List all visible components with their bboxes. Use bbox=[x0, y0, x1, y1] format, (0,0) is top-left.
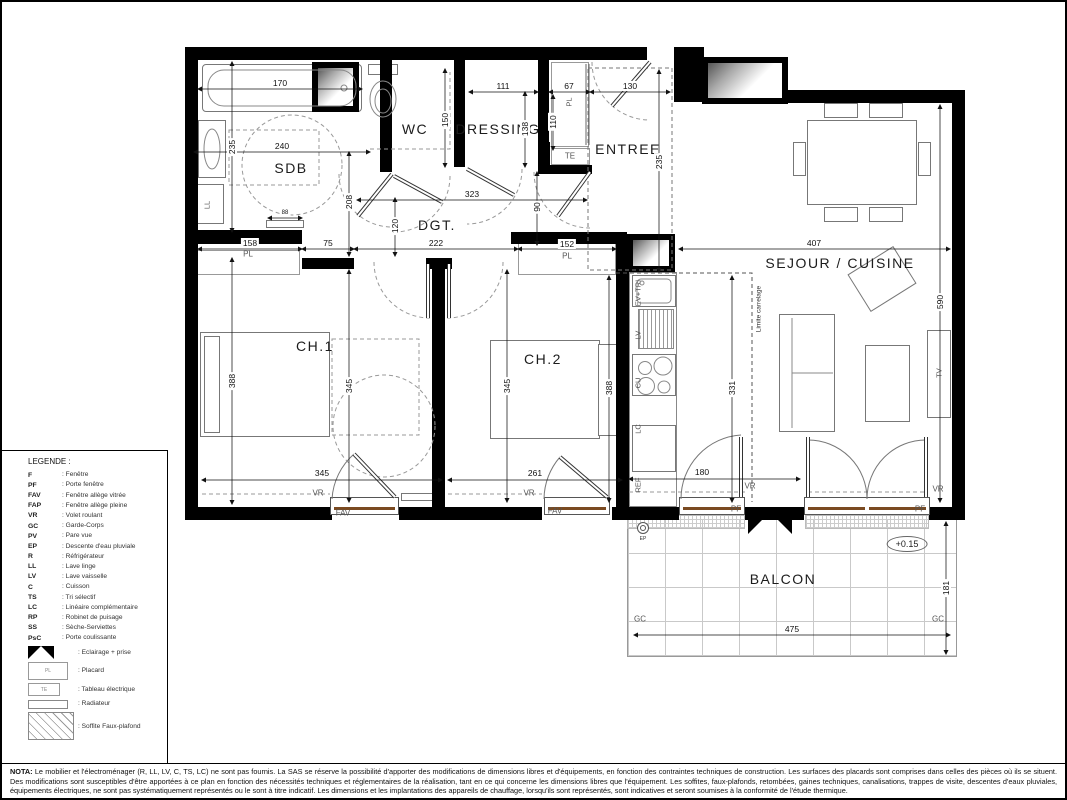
shutter-tag-vr-ch1: VR bbox=[312, 489, 323, 498]
dimension-label: 208 bbox=[344, 193, 354, 211]
legend-abbr: PV bbox=[28, 533, 62, 540]
legend-abbr: VR bbox=[28, 512, 62, 519]
chair bbox=[918, 142, 931, 176]
pillow-ch1 bbox=[204, 336, 220, 433]
shutter-tag-vr-kitchen: VR bbox=[744, 482, 755, 491]
room-label-entree: ENTREE bbox=[595, 141, 661, 157]
dimension-label: 120 bbox=[390, 217, 400, 235]
fridge-label: REF bbox=[634, 478, 643, 493]
window-tag-fav-ch1: FAV bbox=[336, 509, 351, 518]
sofa bbox=[779, 314, 835, 432]
level-label: +0.15 bbox=[887, 536, 928, 552]
wall bbox=[302, 258, 354, 269]
soffit-symbol-icon bbox=[28, 712, 74, 740]
dimension-label: 138 bbox=[520, 120, 530, 138]
electrical-panel-symbol-icon: TE bbox=[28, 683, 60, 696]
floorplan-sheet: SDBWCDRESSINGENTREEDGT.CH.1CH.2SEJOUR / … bbox=[0, 0, 1067, 800]
chair bbox=[793, 142, 806, 176]
legend-row: TE: Tableau électrique bbox=[28, 683, 163, 696]
legend-row: : Radiateur bbox=[28, 699, 163, 709]
placard-symbol-icon: PL bbox=[28, 662, 68, 680]
legend-row: EP: Descente d'eau pluviale bbox=[28, 541, 163, 551]
legend-desc: : Fenêtre allège vitrée bbox=[62, 492, 126, 500]
door-sill bbox=[808, 507, 865, 510]
washbasin bbox=[198, 120, 226, 178]
legend-desc: : Fenêtre allège pleine bbox=[62, 502, 127, 510]
door-window-tag-pf-kitchen: PF bbox=[731, 505, 741, 514]
legend-abbr: C bbox=[28, 584, 62, 591]
wall bbox=[185, 47, 198, 520]
legend-desc: : Descente d'eau pluviale bbox=[62, 543, 135, 551]
dimension-label: 407 bbox=[805, 238, 823, 248]
legend-row: RP: Robinet de puisage bbox=[28, 613, 163, 623]
dimension-label: 590 bbox=[935, 293, 945, 311]
room-label-sejour-cuisine: SEJOUR / CUISINE bbox=[765, 255, 914, 271]
dimension-label: 88 bbox=[280, 210, 291, 216]
wall bbox=[929, 507, 965, 520]
legend-row: F: Fenêtre bbox=[28, 470, 163, 480]
railing-tag-gc-right: GC bbox=[932, 615, 944, 624]
nota-text: Le mobilier et l'électroménager (R, LL, … bbox=[10, 767, 1057, 795]
dimension-label: 90 bbox=[532, 200, 542, 213]
legend-abbr: PF bbox=[28, 482, 62, 489]
legend-abbr: LC bbox=[28, 604, 62, 611]
railing-tag-gc-left: GC bbox=[634, 615, 646, 624]
dimension-label: 170 bbox=[271, 78, 289, 88]
legend-desc: : Robinet de puisage bbox=[62, 614, 123, 622]
legend-desc: : Pare vue bbox=[62, 532, 92, 540]
room-label-wc: WC bbox=[402, 121, 428, 137]
hob-label: CU bbox=[634, 378, 643, 389]
door-pf-sejour bbox=[804, 497, 930, 515]
legend-panel: LEGENDE : F: FenêtrePF: Porte fenêtreFAV… bbox=[2, 450, 168, 763]
legend-abbr: TS bbox=[28, 594, 62, 601]
legend-desc: : Soffite Faux-plafond bbox=[78, 723, 141, 731]
door-window-tag-pf-sejour: PF bbox=[915, 505, 925, 514]
kitchen-sink-label: EV+TRI bbox=[634, 280, 643, 306]
legend-abbr: RP bbox=[28, 614, 62, 621]
wall bbox=[674, 47, 704, 102]
downspout-label: EP bbox=[640, 536, 647, 542]
chair bbox=[869, 207, 903, 222]
wall bbox=[612, 507, 679, 520]
legend-row: C: Cuisson bbox=[28, 582, 163, 592]
radiator-symbol-icon bbox=[28, 700, 68, 709]
dimension-label: 331 bbox=[727, 379, 737, 397]
dimension-label: 222 bbox=[427, 238, 445, 248]
legend-abbr: LV bbox=[28, 573, 62, 580]
dimension-label: 388 bbox=[227, 372, 237, 390]
room-label-ch2: CH.2 bbox=[524, 351, 562, 367]
legend-desc: : Sèche-Serviettes bbox=[62, 624, 116, 632]
legend-row: LL: Lave linge bbox=[28, 562, 163, 572]
legend-desc: : Lave linge bbox=[62, 563, 96, 571]
electrical-panel-label: TE bbox=[565, 152, 575, 161]
legend-abbr: R bbox=[28, 553, 62, 560]
legend-desc: : Cuisson bbox=[62, 583, 90, 591]
dishwasher bbox=[638, 309, 674, 349]
legend-row: PsC: Porte coulissante bbox=[28, 633, 163, 643]
placard-entree-label: PL bbox=[565, 97, 574, 106]
legend-desc: : Radiateur bbox=[78, 700, 110, 708]
wall bbox=[432, 258, 445, 507]
wall bbox=[616, 244, 629, 507]
legend-desc: : Volet roulant bbox=[62, 512, 102, 520]
washing-machine-label: LL bbox=[203, 201, 212, 209]
legend-row: PF: Porte fenêtre bbox=[28, 480, 163, 490]
legend-desc: : Garde-Corps bbox=[62, 522, 104, 530]
legend-desc: : Eclairage + prise bbox=[78, 649, 131, 657]
dimension-label: 152 bbox=[558, 239, 576, 249]
wall bbox=[185, 507, 332, 520]
kitchen-lc-label: LC bbox=[634, 424, 643, 434]
tile-limit-label: Limite carrelage bbox=[756, 286, 763, 332]
wall bbox=[788, 90, 965, 103]
dimension-label: 111 bbox=[495, 81, 512, 91]
legend-row: SS: Sèche-Serviettes bbox=[28, 623, 163, 633]
dimension-label: 130 bbox=[621, 81, 639, 91]
legend-row: LC: Linéaire complémentaire bbox=[28, 602, 163, 612]
wall bbox=[399, 507, 542, 520]
dining-table bbox=[807, 120, 917, 205]
dimension-label: 388 bbox=[604, 379, 614, 397]
legend-abbr: FAP bbox=[28, 502, 62, 509]
room-label-balcon: BALCON bbox=[750, 571, 817, 587]
wall bbox=[454, 60, 465, 167]
dimension-label: 323 bbox=[463, 189, 481, 199]
legend-desc: : Tri sélectif bbox=[62, 594, 95, 602]
threshold bbox=[805, 515, 929, 529]
room-label-sdb: SDB bbox=[274, 160, 307, 176]
dimension-label: 345 bbox=[313, 468, 331, 478]
dimension-label: 75 bbox=[321, 238, 334, 248]
legend-row: : Eclairage + prise bbox=[28, 646, 163, 659]
window-tag-fav-ch2: FAV bbox=[548, 507, 563, 516]
lighting-socket-symbol-icon bbox=[28, 646, 54, 659]
nota-strip: NOTA: Le mobilier et l'électroménager (R… bbox=[2, 763, 1065, 798]
duct-shaft bbox=[702, 57, 788, 104]
dimension-label: 180 bbox=[693, 467, 711, 477]
legend-abbr: EP bbox=[28, 543, 62, 550]
dimension-label: 150 bbox=[440, 111, 450, 129]
dimension-label: 158 bbox=[241, 238, 259, 248]
chair bbox=[824, 207, 858, 222]
dimension-label: 240 bbox=[273, 141, 291, 151]
dimension-label: 261 bbox=[526, 468, 544, 478]
legend-abbr: SS bbox=[28, 624, 62, 631]
dishwasher-label: LV bbox=[634, 331, 643, 340]
legend-row: GC: Garde-Corps bbox=[28, 521, 163, 531]
legend-desc: : Tableau électrique bbox=[78, 686, 135, 694]
nota-label: NOTA: bbox=[10, 767, 33, 776]
dimension-label: 475 bbox=[783, 624, 801, 634]
legend-row: FAV: Fenêtre allège vitrée bbox=[28, 490, 163, 500]
legend-row: : Soffite Faux-plafond bbox=[28, 712, 163, 740]
dimension-label: 235 bbox=[227, 138, 237, 156]
duct-shaft bbox=[627, 234, 675, 272]
placard-ch2-label: PL bbox=[562, 252, 572, 261]
legend-row: VR: Volet roulant bbox=[28, 511, 163, 521]
legend-row: PL: Placard bbox=[28, 662, 163, 680]
legend-row: PV: Pare vue bbox=[28, 531, 163, 541]
wall bbox=[185, 47, 647, 60]
legend-items: F: FenêtrePF: Porte fenêtreFAV: Fenêtre … bbox=[28, 470, 163, 740]
wall bbox=[380, 60, 392, 172]
legend-row: R: Réfrigérateur bbox=[28, 552, 163, 562]
legend-row: TS: Tri sélectif bbox=[28, 592, 163, 602]
legend-row: FAP: Fenêtre allège pleine bbox=[28, 501, 163, 511]
legend-abbr: F bbox=[28, 472, 62, 479]
legend-desc: : Placard bbox=[78, 667, 104, 675]
duct-shaft bbox=[312, 62, 359, 112]
legend-abbr: FAV bbox=[28, 492, 62, 499]
legend-desc: : Fenêtre bbox=[62, 471, 88, 479]
hob bbox=[632, 354, 676, 396]
dimension-label: 345 bbox=[344, 377, 354, 395]
shutter-tag-vr-sejour: VR bbox=[932, 485, 943, 494]
legend-row: LV: Lave vaisselle bbox=[28, 572, 163, 582]
dimension-label: 67 bbox=[562, 81, 575, 91]
legend-abbr: PsC bbox=[28, 635, 62, 642]
legend-desc: : Porte coulissante bbox=[62, 634, 116, 642]
legend-abbr: GC bbox=[28, 523, 62, 530]
dimension-label: 345 bbox=[502, 377, 512, 395]
legend-desc: : Lave vaisselle bbox=[62, 573, 107, 581]
wall bbox=[952, 90, 965, 520]
shutter-tag-vr-ch2: VR bbox=[523, 489, 534, 498]
legend-desc: : Linéaire complémentaire bbox=[62, 604, 138, 612]
legend-desc: : Réfrigérateur bbox=[62, 553, 104, 561]
legend-desc: : Porte fenêtre bbox=[62, 481, 104, 489]
dimension-label: 181 bbox=[941, 579, 951, 597]
towel-radiator bbox=[266, 220, 304, 228]
coffee-table bbox=[865, 345, 910, 422]
placard-ch1-label: PL bbox=[243, 250, 253, 259]
room-label-ch1: CH.1 bbox=[296, 338, 334, 354]
legend-title: LEGENDE : bbox=[28, 457, 163, 466]
legend-abbr: LL bbox=[28, 563, 62, 570]
dimension-label: 235 bbox=[654, 153, 664, 171]
room-label-dgt: DGT. bbox=[418, 217, 456, 233]
tv-label: TV bbox=[935, 368, 944, 378]
wall bbox=[745, 507, 804, 520]
dimension-label: 110 bbox=[548, 113, 558, 131]
wall bbox=[549, 165, 592, 174]
chair bbox=[869, 103, 903, 118]
chair bbox=[824, 103, 858, 118]
